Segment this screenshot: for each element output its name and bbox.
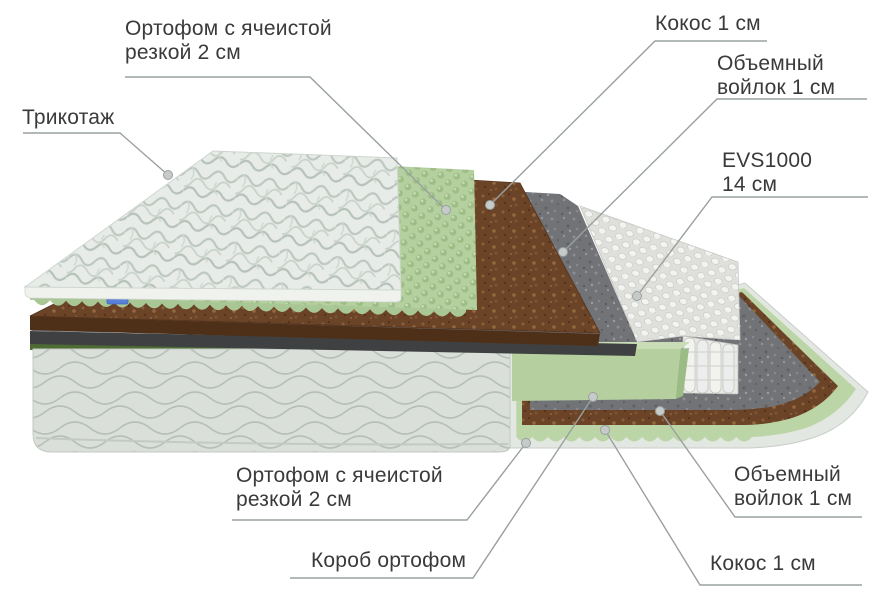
label-evs-line2: 14 см (722, 173, 812, 197)
label-ortofom-bottom-line1: Ортофом с ячеистой (236, 464, 443, 488)
label-korob-text: Короб ортофом (311, 549, 466, 573)
label-trikotazh: Трикотаж (22, 106, 114, 130)
dot-voylok-bottom (656, 407, 665, 416)
dot-evs (633, 292, 642, 301)
dot-kokos-bottom (601, 426, 610, 435)
top-fabric-sheet (25, 151, 401, 302)
label-ortofom-top-line2: резкой 2 см (125, 41, 332, 65)
label-voylok-bottom-line1: Объемный (734, 463, 852, 487)
label-voylok-bottom: Объемный войлок 1 см (734, 463, 852, 511)
label-ortofom-top: Ортофом с ячеистой резкой 2 см (125, 17, 332, 65)
label-kokos-top-text: Кокос 1 см (655, 12, 761, 36)
label-evs-line1: EVS1000 (722, 149, 812, 173)
label-evs: EVS1000 14 см (722, 149, 812, 197)
pocket-coil-faces (683, 336, 738, 394)
label-kokos-bottom-text: Кокос 1 см (710, 552, 816, 576)
label-voylok-bottom-line2: войлок 1 см (734, 487, 852, 511)
side-fabric-front (33, 349, 510, 452)
dot-voylok-top (559, 248, 568, 257)
dot-korob (589, 393, 598, 402)
label-voylok-top-line1: Объемный (717, 52, 835, 76)
foam-box-front (512, 349, 681, 401)
label-voylok-top-line2: войлок 1 см (717, 76, 835, 100)
dot-trikotazh (164, 171, 173, 180)
label-ortofom-bottom: Ортофом с ячеистой резкой 2 см (236, 464, 443, 512)
label-korob: Короб ортофом (311, 549, 466, 573)
mattress-cutaway-diagram: Трикотаж Ортофом с ячеистой резкой 2 см … (0, 0, 874, 599)
dot-kokos-top (486, 201, 495, 210)
label-trikotazh-text: Трикотаж (22, 106, 114, 130)
label-ortofom-bottom-line2: резкой 2 см (236, 488, 443, 512)
label-voylok-top: Объемный войлок 1 см (717, 52, 835, 100)
label-kokos-top: Кокос 1 см (655, 12, 761, 36)
box-front-side (30, 343, 510, 452)
label-kokos-bottom: Кокос 1 см (710, 552, 816, 576)
dot-ortofom-top (442, 206, 451, 215)
leader-line-trikotazh (23, 133, 168, 175)
top-fabric-surface (25, 151, 401, 290)
dot-ortofom-bottom (522, 439, 531, 448)
label-ortofom-top-line1: Ортофом с ячеистой (125, 17, 332, 41)
